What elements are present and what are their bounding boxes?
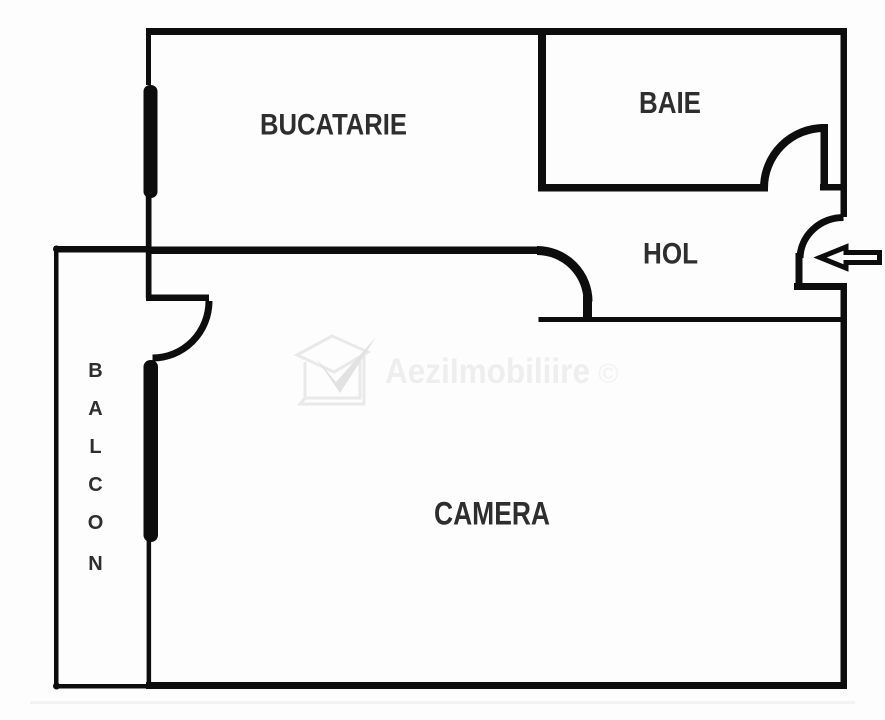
svg-text:A: A [88,398,102,420]
svg-text:HOL: HOL [643,238,698,271]
svg-text:CAMERA: CAMERA [434,496,550,532]
svg-text:O: O [88,512,104,534]
svg-text:B: B [88,360,102,382]
svg-text:L: L [89,436,101,458]
svg-text:BUCATARIE: BUCATARIE [260,109,407,142]
svg-text:C: C [88,474,102,496]
svg-text:©: © [598,358,619,389]
svg-text:AeziImobiliire: AeziImobiliire [385,352,590,391]
svg-text:BAIE: BAIE [639,85,701,120]
svg-text:N: N [88,553,102,575]
